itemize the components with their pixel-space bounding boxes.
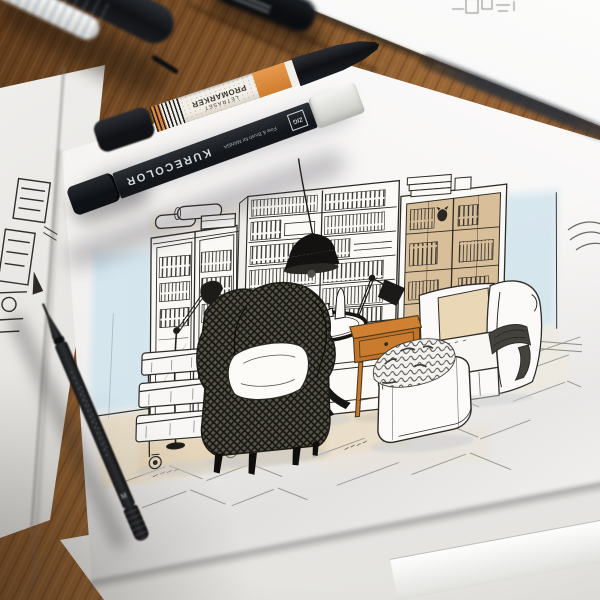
fineliner-text-lines <box>78 383 106 448</box>
zig-logo: ZIG <box>286 109 308 131</box>
armchair-sketch <box>194 278 337 479</box>
kurecolor-subtitle-text: Fine & Brush for MANGA <box>222 125 277 150</box>
top-right-sketch-fragment <box>448 0 538 21</box>
fineliner-mark-text: M <box>120 492 128 501</box>
right-edge-sketch-fragment <box>566 212 600 260</box>
fineliner-end-cap <box>122 504 150 543</box>
fineliner-tip <box>42 303 49 316</box>
fineliner-cone <box>43 314 62 340</box>
